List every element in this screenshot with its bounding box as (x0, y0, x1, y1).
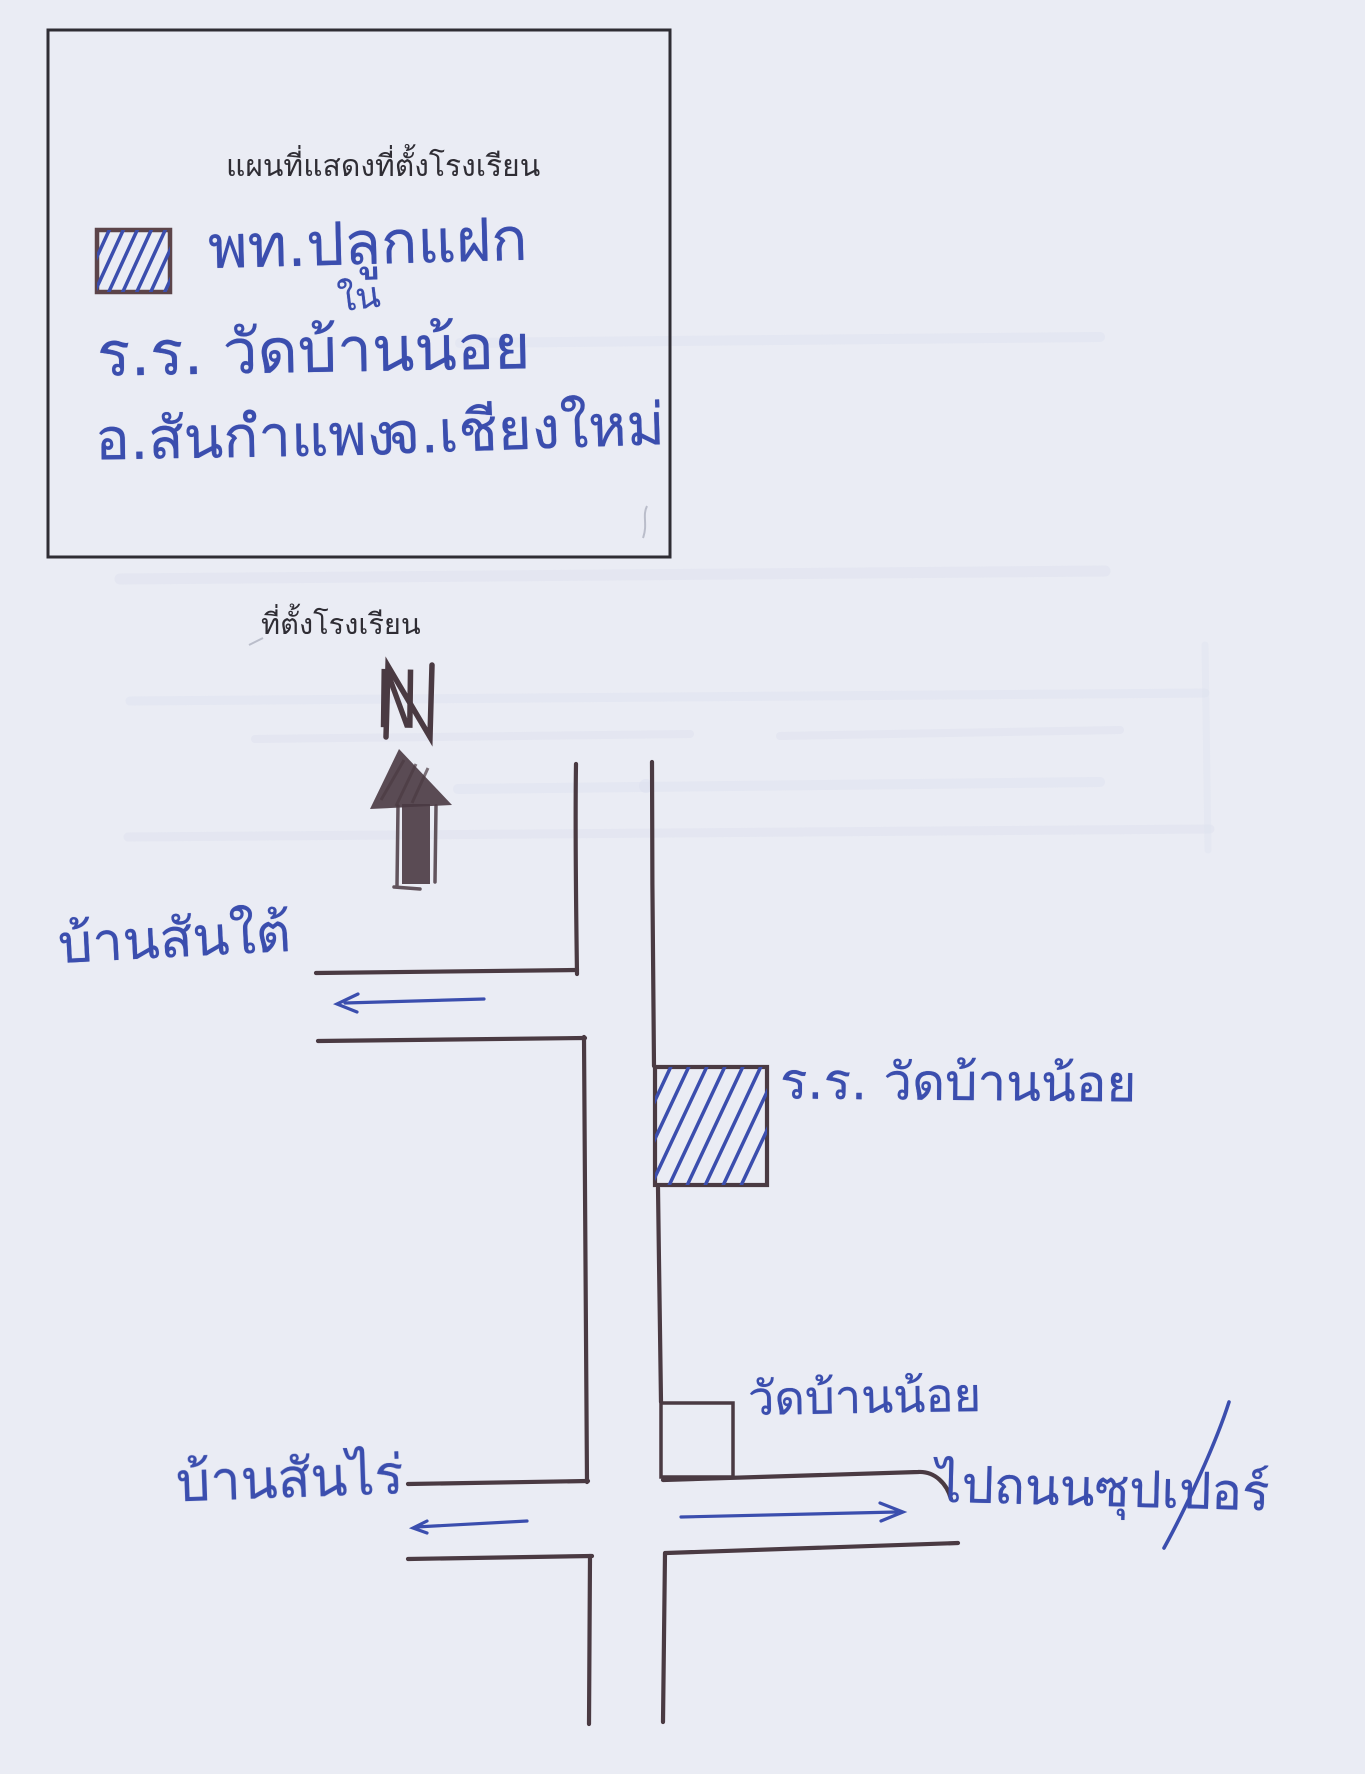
label-temple: วัดบ้านน้อย (748, 1372, 982, 1423)
map-caption: ที่ตั้งโรงเรียน (261, 611, 421, 640)
legend-district: อ.สันกำแพง (95, 405, 396, 468)
road-main-right-edge-mid (658, 1188, 661, 1402)
label-ban-san-tai: บ้านสันใต้ (57, 906, 292, 972)
arrow-southwest-icon (413, 1521, 527, 1533)
road-southwest-top (408, 1481, 588, 1484)
road-southeast-bottom (666, 1543, 958, 1553)
arrow-west-icon (337, 994, 484, 1012)
roads (316, 762, 958, 1724)
temple-marker (661, 1403, 733, 1477)
legend-school-line: ร.ร. วัดบ้านน้อย (96, 316, 530, 386)
road-west-upper-bottom (318, 1038, 585, 1041)
road-southwest-bottom (408, 1556, 592, 1559)
road-north-right-edge (652, 762, 654, 1066)
road-main-left-edge (584, 1037, 587, 1482)
vetiver-hatch-swatch (78, 224, 196, 298)
road-south-left-edge (589, 1556, 590, 1724)
label-school: ร.ร. วัดบ้านน้อย (780, 1056, 1137, 1110)
legend-province: จ.เชียงใหม่ (385, 395, 666, 463)
label-ban-san-rai: บ้านสันไร่ (175, 1448, 404, 1510)
school-building-marker (612, 1060, 800, 1192)
arrow-southeast-icon (681, 1503, 903, 1521)
north-letter: N (375, 660, 419, 741)
road-south-right-edge (663, 1553, 665, 1722)
legend-title: แผนที่แสดงที่ตั้งโรงเรียน (226, 152, 540, 182)
label-to-superhighway: ไปถนนซุปเปอร์ (935, 1460, 1270, 1520)
road-north-left-edge (576, 764, 577, 974)
scanned-map-page: แผนที่แสดงที่ตั้งโรงเรียน ที่ตั้งโรงเรีย… (0, 0, 1365, 1774)
legend-symbol-label: พท.ปลูกแฝก (207, 210, 528, 278)
road-west-upper-top (316, 970, 577, 973)
